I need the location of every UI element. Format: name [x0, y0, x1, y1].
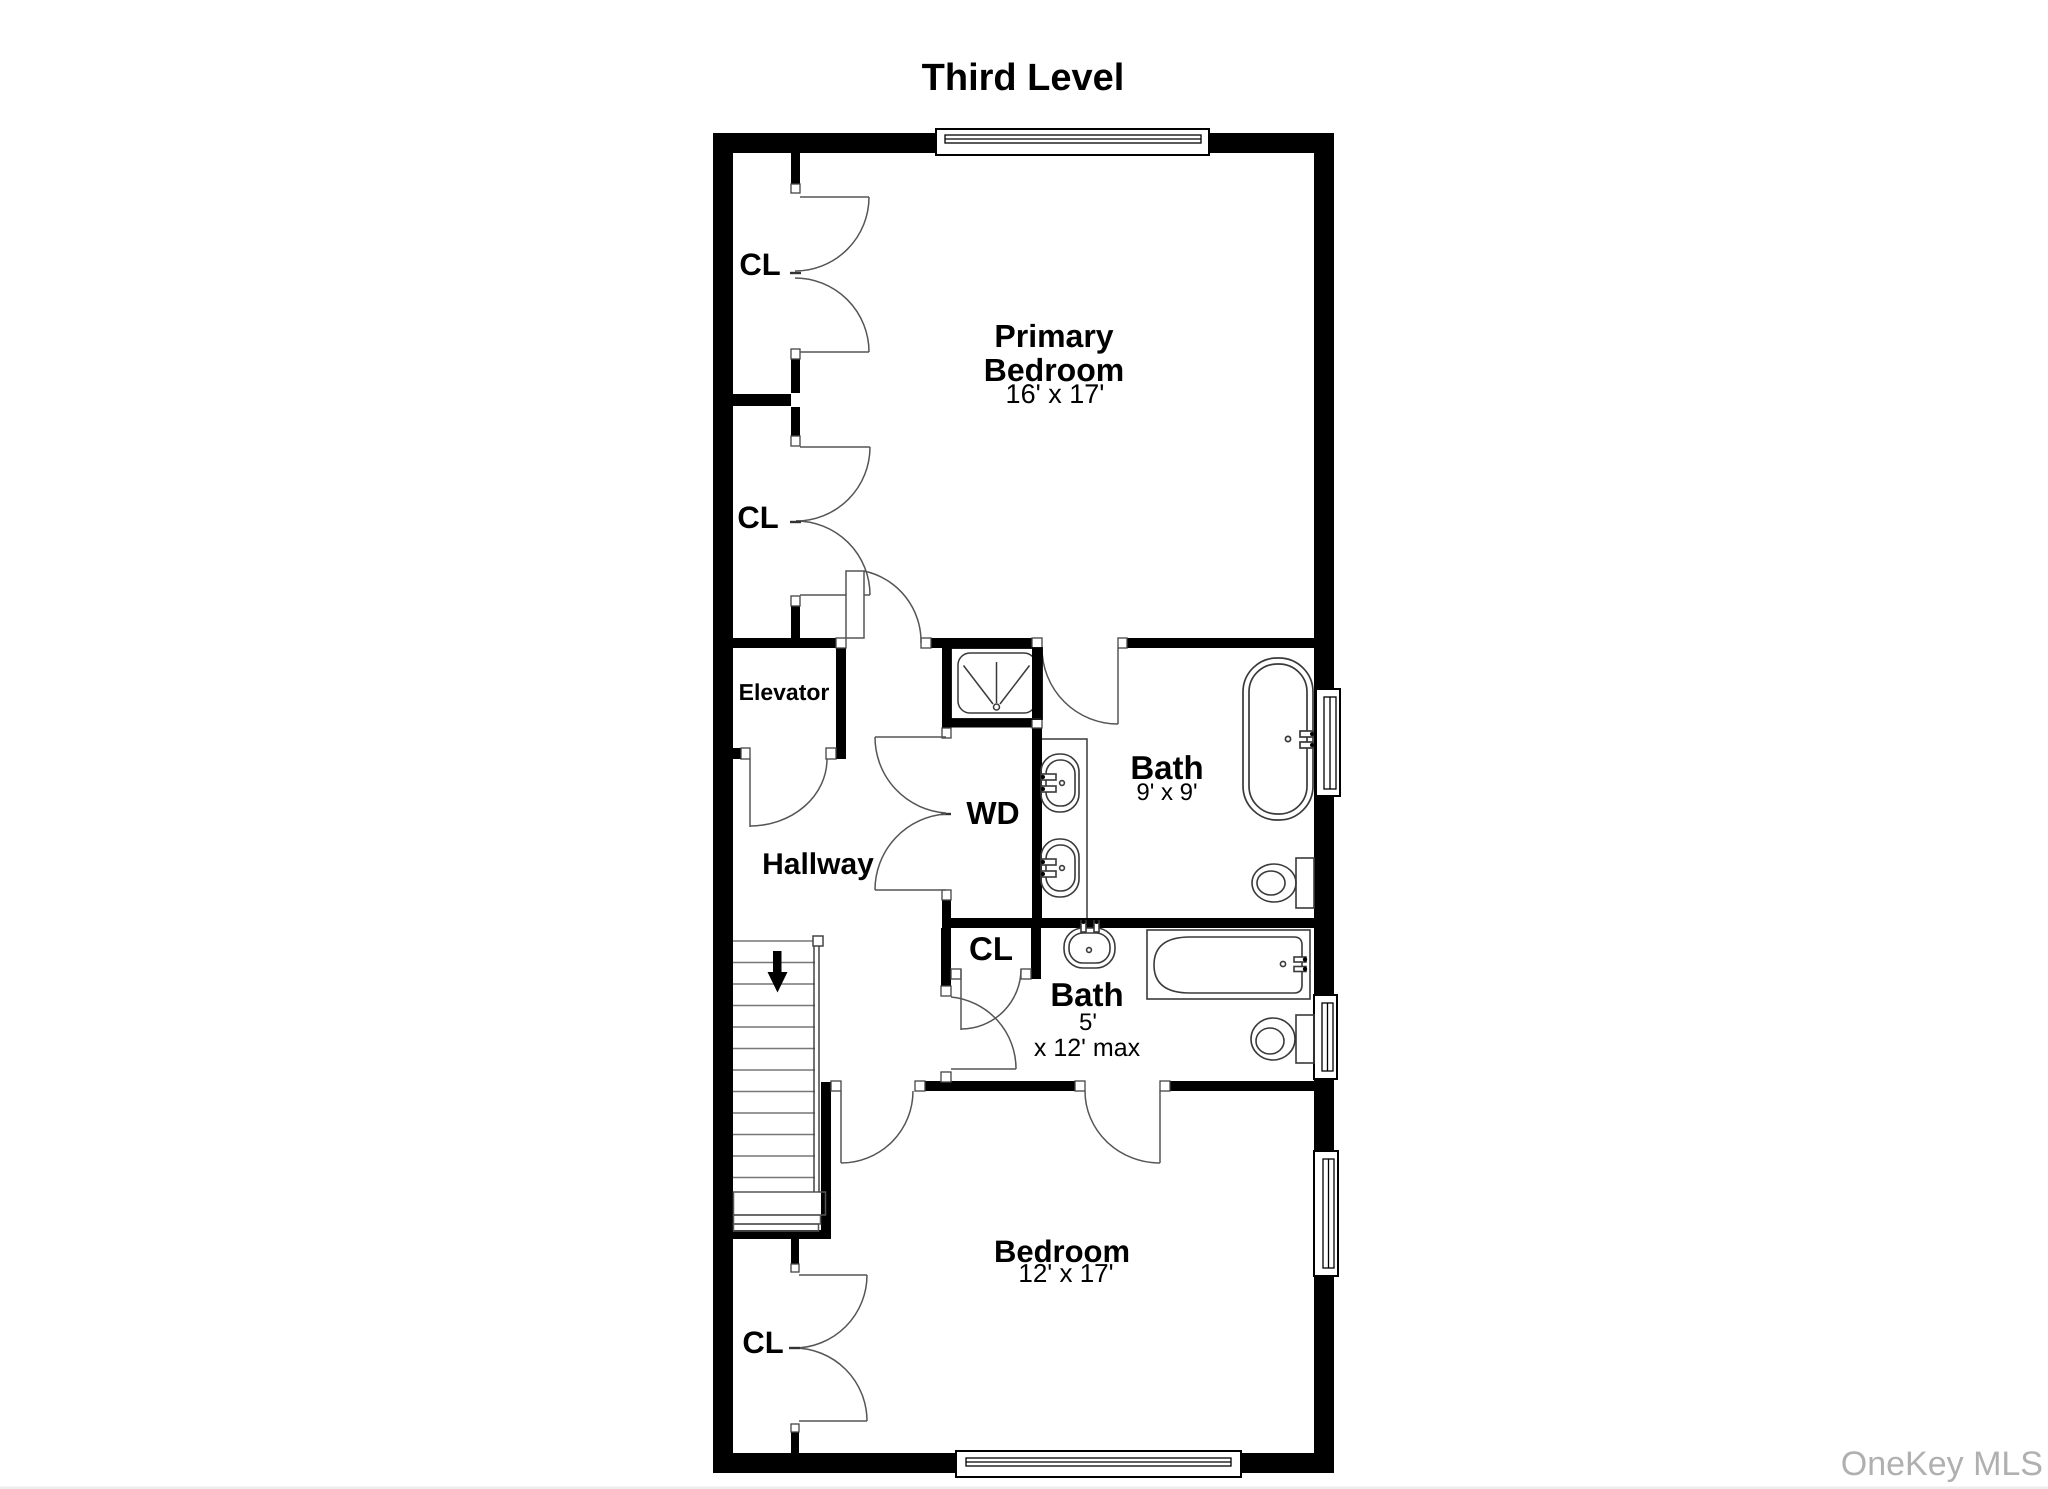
svg-text:9' x 9': 9' x 9' — [1136, 779, 1197, 806]
svg-text:CL: CL — [737, 500, 778, 535]
svg-text:OneKey MLS: OneKey MLS — [1841, 1445, 2043, 1483]
svg-text:CL: CL — [969, 930, 1013, 967]
svg-text:5': 5' — [1079, 1009, 1097, 1036]
svg-text:CL: CL — [742, 1325, 783, 1360]
svg-text:CL: CL — [739, 247, 780, 282]
svg-text:Primary: Primary — [994, 318, 1113, 354]
svg-text:16' x 17': 16' x 17' — [1006, 379, 1105, 409]
svg-text:Bath: Bath — [1050, 976, 1123, 1013]
svg-text:Elevator: Elevator — [739, 679, 830, 705]
svg-text:WD: WD — [966, 795, 1019, 831]
svg-text:12' x 17': 12' x 17' — [1018, 1258, 1113, 1288]
svg-text:x 12' max: x 12' max — [1034, 1034, 1141, 1062]
svg-text:Hallway: Hallway — [762, 848, 874, 881]
svg-text:Third Level: Third Level — [922, 57, 1125, 99]
